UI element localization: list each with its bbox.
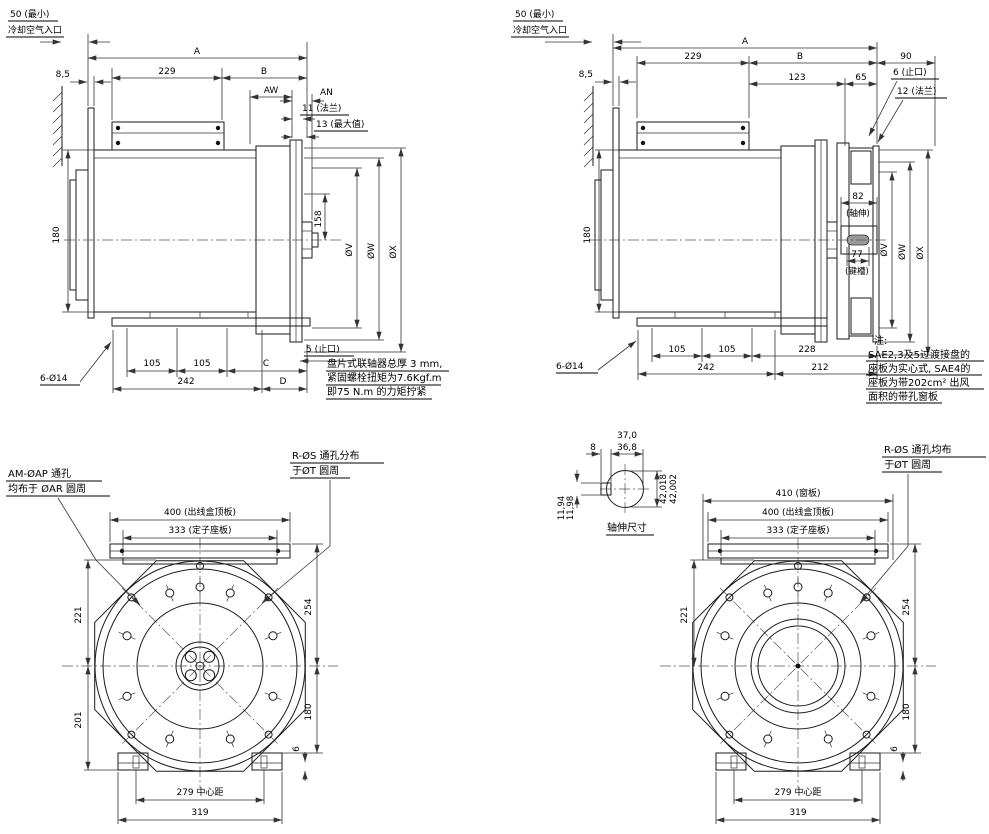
tl-dim-b: B [261,67,267,77]
tl-note-line3: 即75 N.m 的力矩拧紧 [327,385,426,398]
tr-dim-123: 123 [788,73,805,83]
tr-dim-65: 65 [855,73,866,83]
tr-dim-ov: ØV [879,243,890,257]
tr-dim-8-5: 8,5 [579,70,593,80]
tl-dim-242: 242 [177,377,194,387]
tr-dim-212: 212 [811,363,828,373]
br-dim-279-center: 279 中心距 [774,786,821,798]
tl-dim-8-5: 8,5 [56,70,70,80]
br-dim-410: 410 (窗板) [775,487,820,499]
br-shaft-dim-37-0: 37,0 [617,431,637,441]
tl-dim-13-max: 13 (最大值) [316,118,364,130]
br-shaft-dia-lower: 42,002 [669,474,679,504]
tr-air-inlet-label: 冷却空气入口 [513,24,567,36]
br-shaft-dim-8: 8 [590,443,596,453]
tl-dim-229: 229 [158,67,175,77]
tl-dim-105a: 105 [143,359,160,369]
tr-dim-180: 180 [583,226,593,243]
bl-dim-254: 254 [304,598,314,615]
alternator-outline-drawing: 50 (最小) 冷却空气入口 8,5 A 229 B AW AN 11 (法兰)… [0,0,989,834]
br-shaft-key-lower: 11,98 [566,496,576,520]
tr-note-line1: SAE2,3及5过渡接盘的 [868,348,970,361]
br-shaft-dim-36-8: 36,8 [617,443,637,453]
bl-rs-holes-label-2: 于ØT 圆周 [292,465,339,477]
engineering-drawing-page: 50 (最小) 冷却空气入口 8,5 A 229 B AW AN 11 (法兰)… [0,0,989,834]
br-dim-254: 254 [902,598,912,615]
tl-dim-11-flange: 11 (法兰) [302,102,341,114]
bl-dim-180: 180 [304,703,314,720]
bl-dim-6: 6 [292,746,302,752]
tr-min-air-label: 50 (最小) [515,9,554,20]
tl-dim-an: AN [320,88,333,98]
bl-dim-221: 221 [74,606,84,623]
tl-note-line1: 盘片式联轴器总厚 3 mm, [327,357,442,370]
br-rs-holes-label-2: 于ØT 圆周 [884,459,931,471]
view-front-sae: 37,0 36,8 8 42,018 42,002 11,94 11,98 轴伸… [557,431,986,824]
tr-note-line0: 注: [874,334,887,347]
tl-dim-aw: AW [264,86,279,96]
tr-dim-ow: ØW [897,244,908,260]
bl-dim-319: 319 [191,808,208,818]
tr-dim-77: 77 [851,250,862,260]
br-shaft-caption: 轴伸尺寸 [607,521,647,534]
br-dim-180: 180 [902,703,912,720]
tl-geometry [6,21,449,399]
tr-dim-105a: 105 [668,345,685,355]
bl-dim-333: 333 (定子座板) [168,524,231,536]
bl-dim-279-center: 279 中心距 [176,786,223,798]
bl-dim-201: 201 [74,711,84,728]
tr-dim-a: A [742,37,749,47]
tl-dim-ov: ØV [344,243,355,257]
tl-holes-label: 6-Ø14 [40,373,68,384]
view-front-coupling: AM-ØAP 通孔 均布于 ØAR 圆周 R-ØS 通孔分布 于ØT 圆周 40… [6,450,384,824]
br-rs-holes-label-1: R-ØS 通孔均布 [884,444,952,456]
tl-dim-d: D [280,377,287,387]
tl-dim-c: C [263,359,269,369]
tl-dim-ox: ØX [388,245,399,258]
tl-air-inlet-label: 冷却空气入口 [8,24,62,36]
tr-note-line3: 座板为带202cm² 出风 [868,376,970,389]
tr-dim-82: 82 [852,192,863,202]
tr-note-line4: 面积的带孔窗板 [868,390,938,403]
tl-dim-105b: 105 [193,359,210,369]
tl-note-line2: 紧固螺栓扭矩为7.6Kgf.m [327,371,442,384]
tl-dim-a: A [194,47,201,57]
tl-dim-ow: ØW [366,243,377,259]
tl-dim-5-spigot: 5 (止口) [306,343,340,355]
br-geometry [577,449,986,824]
tr-dim-242: 242 [697,363,714,373]
br-shaft-dia-upper: 42,018 [659,474,669,504]
tr-dim-228: 228 [798,345,815,355]
br-dim-221: 221 [680,606,690,623]
tr-note-line2: 座板为实心式, SAE4的 [868,362,970,375]
tr-dim-6-spigot: 6 (止口) [893,66,927,78]
br-dim-333: 333 (定子座板) [766,524,829,536]
tr-shaft-ext-label: (轴伸) [846,208,870,219]
tr-holes-label: 6-Ø14 [556,361,584,372]
bl-rs-holes-label-1: R-ØS 通孔分布 [292,450,360,462]
tr-dim-90: 90 [900,52,912,62]
tr-dim-229: 229 [684,52,701,62]
bl-am-holes-label-2: 均布于 ØAR 圆周 [8,483,86,495]
tl-dim-158: 158 [314,210,324,227]
tr-dim-ox: ØX [915,246,926,259]
tr-dim-b: B [797,52,803,62]
bl-dim-400: 400 (出线盒顶板) [164,506,236,518]
br-dim-6: 6 [890,746,900,752]
tr-dim-105b: 105 [718,345,735,355]
tr-keyway-label: (键槽) [845,266,869,277]
tr-dim-12-flange: 12 (法兰) [897,85,936,97]
tl-min-air-label: 50 (最小) [10,9,49,20]
br-dim-400: 400 (出线盒顶板) [762,506,834,518]
view-side-sae: 50 (最小) 冷却空气入口 8,5 A 229 B 90 123 65 6 (… [511,9,984,403]
br-dim-319: 319 [789,808,806,818]
bl-am-holes-label-1: AM-ØAP 通孔 [8,468,71,480]
tl-dim-180: 180 [52,226,62,243]
view-side-coupling: 50 (最小) 冷却空气入口 8,5 A 229 B AW AN 11 (法兰)… [6,9,449,399]
